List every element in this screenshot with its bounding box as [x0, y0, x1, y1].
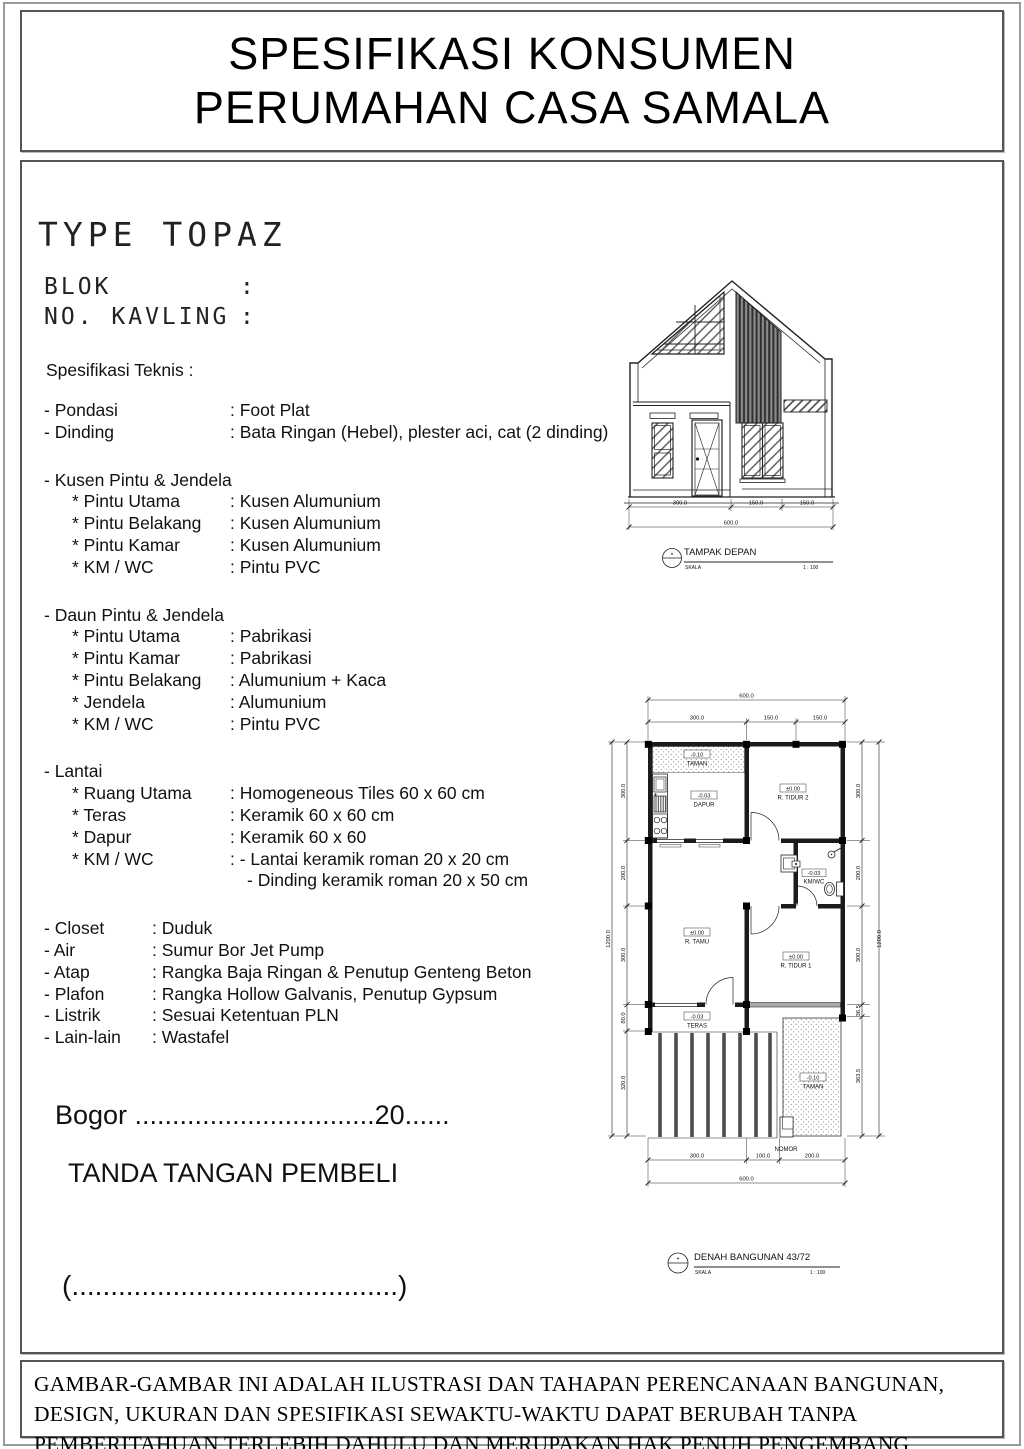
doc-title-line1: SPESIFIKASI KONSUMEN — [228, 27, 796, 81]
plan-dim-top: 600.0 300.0 150.0 150.0 — [646, 694, 848, 741]
plan-window-lines — [655, 840, 723, 1007]
spec-value: : Keramik 60 x 60 — [230, 827, 366, 849]
spec-row: * Pintu Utama: Kusen Alumunium — [44, 491, 624, 513]
spec-row: * KM / WC: Pintu PVC — [44, 557, 624, 579]
label-taman-bottom-name: TAMAN — [803, 1085, 824, 1091]
plan-kitchen-counter — [653, 774, 668, 838]
buyer-signature-heading: TANDA TANGAN PEMBELI — [68, 1158, 398, 1189]
plan-dim-right-2: 300.0 — [856, 948, 862, 963]
spec-row: * KM / WC: Pintu PVC — [44, 714, 624, 736]
spec-row: - Plafon: Rangka Hollow Galvanis, Penutu… — [44, 984, 624, 1006]
plan-scale-label: SKALA — [695, 1270, 712, 1276]
spec-value: : Foot Plat — [230, 400, 310, 422]
label-tamu-name: R. TAMU — [685, 940, 709, 946]
spec-value: : Rangka Hollow Galvanis, Penutup Gypsum — [152, 984, 497, 1006]
spec-label: * Dapur — [72, 827, 131, 847]
spec-row: * Pintu Kamar: Pabrikasi — [44, 648, 624, 670]
spec-label: * Ruang Utama — [72, 783, 192, 803]
plan-nomor-label: NOMOR — [775, 1147, 799, 1153]
label-kmwc-value: -0.03 — [808, 871, 821, 877]
spec-label: * Pintu Utama — [72, 626, 180, 646]
doc-title-line2: PERUMAHAN CASA SAMALA — [194, 81, 830, 135]
footer-box: GAMBAR-GAMBAR INI ADALAH ILUSTRASI DAN T… — [20, 1360, 1004, 1438]
type-title: TYPE TOPAZ — [38, 215, 287, 254]
spec-row: - Listrik: Sesuai Ketentuan PLN — [44, 1005, 624, 1027]
plan-shower — [828, 845, 841, 858]
spec-value: : Rangka Baja Ringan & Penutup Genteng B… — [152, 962, 531, 984]
spec-row: * Teras: Keramik 60 x 60 cm — [44, 805, 624, 827]
plan-dim-left-4: 320.0 — [621, 1076, 627, 1091]
label-kmwc-name: KM/WC — [804, 880, 825, 886]
spec-row: * Ruang Utama: Homogeneous Tiles 60 x 60… — [44, 783, 624, 805]
plan-dim-bottom: 300.0 100.0 200.0 600.0 — [646, 1138, 848, 1187]
kavling-row: NO. KAVLING : — [44, 304, 229, 330]
spec-row: - Lantai — [44, 761, 624, 783]
plan-wastafel — [781, 855, 800, 872]
plan-tidur1-window-band — [749, 1003, 841, 1008]
elevation-title: TAMPAK DEPAN — [684, 547, 756, 558]
spec-label: * Pintu Kamar — [72, 648, 180, 668]
city-date-line: Bogor ................................20… — [55, 1100, 450, 1131]
spec-label: * Pintu Belakang — [72, 670, 201, 690]
spec-row: * Dapur: Keramik 60 x 60 — [44, 827, 624, 849]
spec-label: * KM / WC — [72, 714, 154, 734]
plan-dim-top-1: 150.0 — [764, 716, 779, 722]
plan-dim-bottom-2: 200.0 — [805, 1154, 820, 1160]
spec-value: : Pintu PVC — [230, 714, 320, 736]
kavling-colon: : — [240, 304, 257, 330]
label-tamu-value: ±0.00 — [690, 930, 704, 936]
spec-row: - Atap: Rangka Baja Ringan & Penutup Gen… — [44, 962, 624, 984]
plan-title: DENAH BANGUNAN 43/72 — [694, 1252, 810, 1263]
elevation-scale-label: SKALA — [685, 565, 702, 571]
spec-value: - Dinding keramik roman 20 x 50 cm — [247, 870, 528, 892]
label-teras-name: TERAS — [687, 1024, 707, 1030]
spec-list: - Pondasi: Foot Plat- Dinding: Bata Ring… — [44, 400, 624, 1049]
elevation-right-window — [740, 423, 785, 483]
document-page: SPESIFIKASI KONSUMEN PERUMAHAN CASA SAMA… — [0, 0, 1024, 1449]
spec-value: : Sumur Bor Jet Pump — [152, 940, 324, 962]
label-tidur1-value: ±0.00 — [789, 954, 803, 960]
spec-row: - Dinding: Bata Ringan (Hebel), plester … — [44, 422, 624, 444]
plan-toilet — [825, 882, 844, 896]
spec-row: - Closet: Duduk — [44, 918, 624, 940]
plan-dim-right-total: 1200.0 — [877, 930, 883, 948]
spec-value: : Alumunium + Kaca — [230, 670, 386, 692]
plan-dim-top-0: 300.0 — [690, 716, 705, 722]
label-dapur-name: DAPUR — [693, 803, 715, 809]
spec-label: * KM / WC — [72, 849, 154, 869]
label-taman-top-name: TAMAN — [687, 762, 708, 768]
elevation-slat-panel — [736, 292, 781, 423]
spec-row: * KM / WC: - Lantai keramik roman 20 x 2… — [44, 849, 624, 871]
spec-value: : Pintu PVC — [230, 557, 320, 579]
elev-dim-150b: 150.0 — [800, 501, 815, 507]
plan-dim-top-2: 150.0 — [813, 716, 828, 722]
spec-row: * Pintu Belakang: Kusen Alumunium — [44, 513, 624, 535]
elevation-scale-value: 1 : 100 — [803, 565, 819, 571]
spec-value: : Wastafel — [152, 1027, 229, 1049]
plan-dim-left-3: 80.0 — [621, 1012, 627, 1023]
spec-label: - Atap — [44, 962, 90, 982]
spec-row: - Pondasi: Foot Plat — [44, 400, 624, 422]
label-tidur2-name: R. TIDUR 2 — [778, 796, 810, 802]
elevation-fascia-strip — [784, 400, 827, 412]
spec-gap — [44, 444, 624, 470]
plan-dim-bottom-1: 100.0 — [756, 1154, 771, 1160]
spec-row: - Air: Sumur Bor Jet Pump — [44, 940, 624, 962]
plan-scale-value: 1 : 100 — [810, 1270, 826, 1276]
spec-heading: Spesifikasi Teknis : — [46, 360, 194, 381]
elevation-transom-vents — [650, 413, 718, 419]
elev-dim-300: 300.0 — [673, 501, 688, 507]
spec-label: - Pondasi — [44, 400, 118, 420]
plan-dim-left-2: 300.0 — [621, 948, 627, 963]
elevation-left-window — [652, 423, 673, 478]
plan-dim-left-1: 200.0 — [621, 866, 627, 881]
spec-label: - Closet — [44, 918, 104, 938]
spec-gap — [44, 892, 624, 918]
plan-walls — [648, 742, 845, 1032]
spec-label: * Jendela — [72, 692, 145, 712]
spec-value: : Kusen Alumunium — [230, 513, 381, 535]
spec-value: : Pabrikasi — [230, 648, 312, 670]
kavling-label: NO. KAVLING — [44, 304, 229, 330]
spec-row: - Kusen Pintu & Jendela — [44, 470, 624, 492]
plan-title-block: DENAH BANGUNAN 43/72 SKALA 1 : 100 — [668, 1252, 840, 1276]
label-taman-top-value: -0.10 — [691, 752, 704, 758]
plan-dim-bottom-0: 300.0 — [690, 1154, 705, 1160]
elev-dim-total: 600.0 — [724, 521, 739, 527]
spec-value: : Homogeneous Tiles 60 x 60 cm — [230, 783, 485, 805]
elevation-title-block: TAMPAK DEPAN SKALA 1 : 100 — [663, 547, 834, 571]
plan-dim-right-3: 36.5 — [856, 1005, 862, 1016]
spec-label: - Lantai — [44, 761, 102, 781]
spec-row: - Dinding keramik roman 20 x 50 cm — [44, 870, 624, 892]
label-teras-value: -0.03 — [691, 1014, 704, 1020]
plan-dim-right-1: 200.0 — [856, 866, 862, 881]
spec-label: * Pintu Utama — [72, 491, 180, 511]
spec-row: * Pintu Belakang: Alumunium + Kaca — [44, 670, 624, 692]
elevation-gable-window — [652, 292, 724, 354]
spec-row: * Pintu Utama: Pabrikasi — [44, 626, 624, 648]
spec-label: - Plafon — [44, 984, 104, 1004]
spec-label: * KM / WC — [72, 557, 154, 577]
plan-dim-right-4: 363.5 — [856, 1069, 862, 1084]
spec-row: * Jendela: Alumunium — [44, 692, 624, 714]
blok-row: BLOK : — [44, 274, 111, 300]
floor-plan-drawing: NOMOR -0.10 TAMAN -0.03 DAPUR ±0.00 R. T… — [600, 688, 900, 1288]
spec-gap — [44, 579, 624, 605]
spec-value: : Kusen Alumunium — [230, 535, 381, 557]
spec-row: * Pintu Kamar: Kusen Alumunium — [44, 535, 624, 557]
plan-dim-left: 300.0 200.0 300.0 80.0 320.0 1200.0 — [606, 740, 646, 1139]
elevation-door — [692, 420, 722, 496]
spec-label: * Teras — [72, 805, 126, 825]
spec-label: - Dinding — [44, 422, 114, 442]
spec-label: - Air — [44, 940, 75, 960]
plan-dim-bottom-total: 600.0 — [739, 1177, 754, 1183]
elevation-dimensions: 300.0 150.0 150.0 600.0 — [627, 499, 836, 530]
spec-label: * Pintu Kamar — [72, 535, 180, 555]
spec-value: : Kusen Alumunium — [230, 491, 381, 513]
spec-gap — [44, 735, 624, 761]
spec-value: : Keramik 60 x 60 cm — [230, 805, 394, 827]
spec-value: : Bata Ringan (Hebel), plester aci, cat … — [230, 422, 608, 444]
spec-label: * Pintu Belakang — [72, 513, 201, 533]
spec-label: - Lain-lain — [44, 1027, 121, 1047]
spec-value: : - Lantai keramik roman 20 x 20 cm — [230, 849, 509, 871]
spec-label: - Kusen Pintu & Jendela — [44, 470, 232, 490]
blok-colon: : — [240, 274, 257, 300]
spec-row: - Daun Pintu & Jendela — [44, 605, 624, 627]
plan-dim-right: 300.0 200.0 300.0 36.5 363.5 1200.0 — [847, 740, 885, 1139]
label-tidur1-name: R. TIDUR 1 — [781, 964, 813, 970]
label-tidur2-value: ±0.00 — [786, 786, 800, 792]
spec-label: - Listrik — [44, 1005, 100, 1025]
signature-name-line: (.......................................… — [62, 1270, 407, 1302]
spec-label: - Daun Pintu & Jendela — [44, 605, 224, 625]
elevation-drawing: 300.0 150.0 150.0 600.0 TAMPAK DEPAN SKA… — [600, 262, 900, 582]
spec-row: - Lain-lain: Wastafel — [44, 1027, 624, 1049]
plan-dim-right-0: 300.0 — [856, 784, 862, 799]
footer-disclaimer: GAMBAR-GAMBAR INI ADALAH ILUSTRASI DAN T… — [22, 1362, 1002, 1449]
spec-value: : Duduk — [152, 918, 212, 940]
plan-carport-stripes — [648, 1032, 777, 1138]
title-box: SPESIFIKASI KONSUMEN PERUMAHAN CASA SAMA… — [20, 10, 1004, 152]
label-taman-bottom-value: -0.10 — [807, 1075, 820, 1081]
spec-value: : Sesuai Ketentuan PLN — [152, 1005, 339, 1027]
elev-dim-150a: 150.0 — [749, 501, 764, 507]
plan-dim-left-0: 300.0 — [621, 784, 627, 799]
spec-value: : Pabrikasi — [230, 626, 312, 648]
label-dapur-value: -0.03 — [698, 793, 711, 799]
blok-label: BLOK — [44, 274, 111, 300]
spec-value: : Alumunium — [230, 692, 326, 714]
plan-dim-left-total: 1200.0 — [606, 930, 612, 948]
plan-dim-top-total: 600.0 — [739, 694, 754, 700]
